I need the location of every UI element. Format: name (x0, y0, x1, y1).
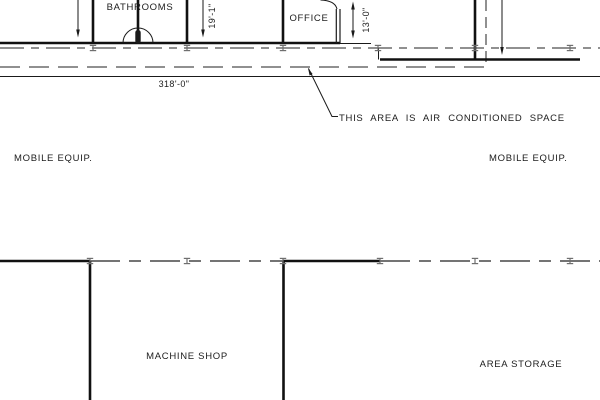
dim-arrow-down-19-1 (201, 30, 205, 38)
dim-arrow-down-13-0 (351, 31, 355, 39)
room-label-machine-shop: MACHINE SHOP (146, 351, 228, 362)
office-door-arc (321, 0, 338, 9)
dim-label-318-0: 318'-0" (159, 79, 190, 89)
note-leader-line (309, 69, 339, 117)
dim-arrow-up-13-0 (351, 2, 355, 10)
room-label-bathrooms: BATHROOMS (107, 2, 174, 13)
floor-plan-drawing: BATHROOMS OFFICE 19'-1" 13'-0" 318'-0" T… (0, 0, 600, 400)
bathroom-door-leaf (135, 30, 140, 44)
area-label-mobile-equip-right: MOBILE EQUIP. (489, 153, 568, 164)
dim-arrow-down-right (500, 47, 504, 55)
grid-tick (472, 258, 478, 263)
area-label-area-storage: AREA STORAGE (480, 359, 563, 370)
dim-label-13-0: 13'-0" (361, 7, 371, 32)
note-air-conditioned: THIS AREA IS AIR CONDITIONED SPACE (339, 113, 565, 124)
dim-label-19-1: 19'-1" (207, 3, 217, 28)
area-label-mobile-equip-left: MOBILE EQUIP. (14, 153, 93, 164)
dim-arrow-down-left (76, 30, 80, 38)
room-label-office: OFFICE (289, 13, 328, 24)
floor-plan-canvas: BATHROOMS OFFICE 19'-1" 13'-0" 318'-0" T… (0, 0, 600, 400)
